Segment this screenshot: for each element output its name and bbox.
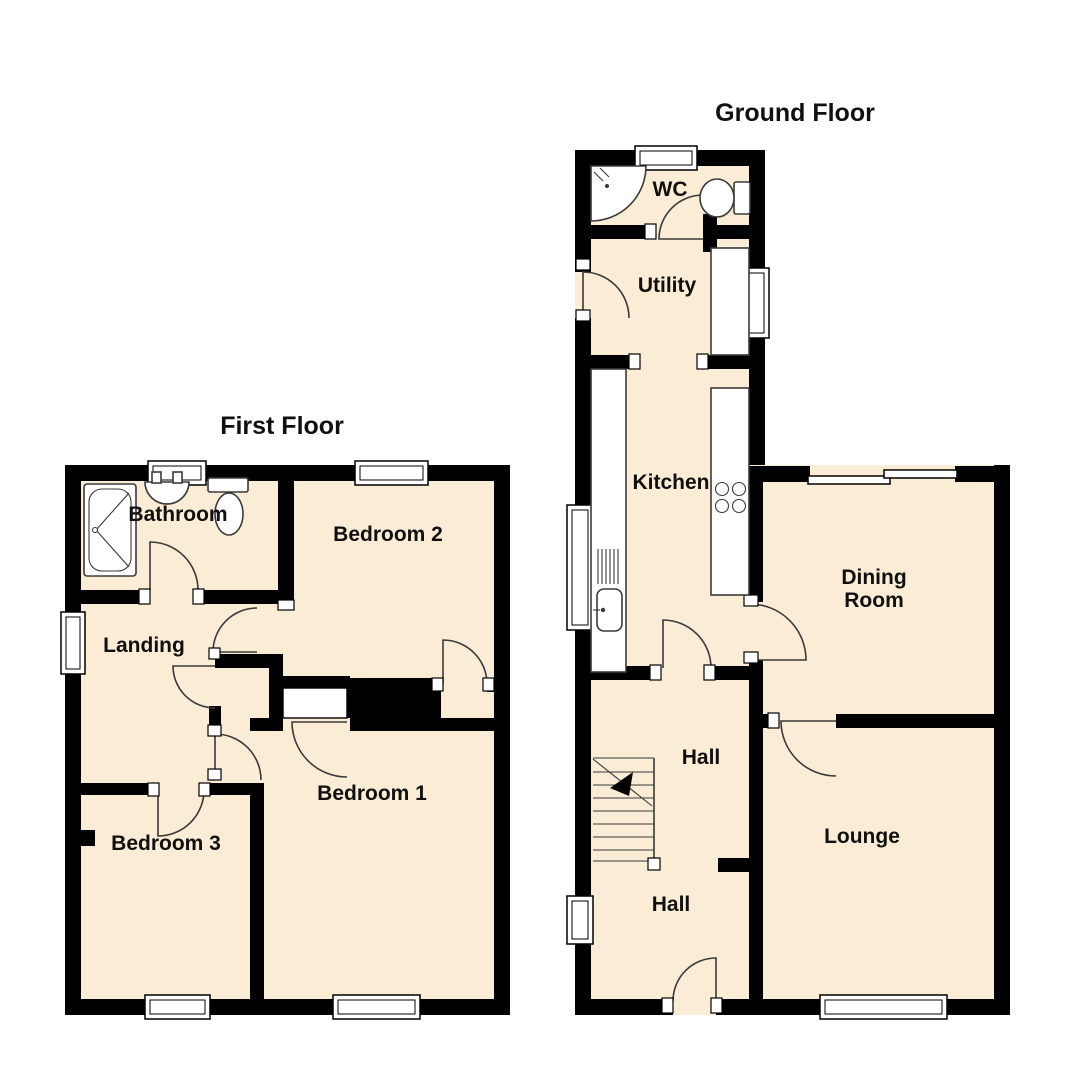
door-jamb <box>139 589 150 604</box>
wall <box>703 214 717 252</box>
door-jamb <box>662 998 673 1013</box>
bathtub <box>84 484 136 576</box>
wall <box>269 654 283 720</box>
room-label-lounge: Lounge <box>824 825 900 848</box>
wall <box>250 783 264 999</box>
wall <box>749 466 810 482</box>
ground-floor-title: Ground Floor <box>715 99 875 127</box>
room-label-dining-line2: Room <box>844 589 904 612</box>
window <box>567 505 593 630</box>
wall <box>81 830 95 846</box>
cupboard <box>283 688 347 718</box>
door-jamb <box>576 310 590 321</box>
wall <box>591 225 647 239</box>
ground-floor-plan: Ground Floor <box>567 99 1010 1019</box>
floorplan-page: First Floor <box>0 0 1080 1080</box>
room-label-bedroom3: Bedroom 3 <box>111 832 221 855</box>
window <box>567 896 593 944</box>
wall <box>703 355 749 369</box>
room-label-kitchen: Kitchen <box>632 471 709 494</box>
wall <box>749 660 763 999</box>
door-jamb <box>711 998 722 1013</box>
door-jamb <box>209 648 220 659</box>
wall <box>65 465 510 481</box>
wall <box>278 481 294 604</box>
first-floor-title: First Floor <box>220 412 344 440</box>
wall <box>81 590 148 604</box>
door-jamb <box>768 713 779 728</box>
wall <box>494 465 510 1015</box>
wall <box>836 714 994 728</box>
room-label-bathroom: Bathroom <box>128 503 227 526</box>
wall <box>81 783 157 795</box>
floorplan-drawing: First Floor <box>0 0 1080 1080</box>
wall <box>65 465 81 1015</box>
window <box>333 995 420 1019</box>
wall <box>994 465 1010 1015</box>
door-jamb <box>650 665 661 680</box>
wall <box>250 718 283 731</box>
door-jamb <box>208 725 221 736</box>
wall <box>712 666 749 680</box>
room-label-hall-upper: Hall <box>682 746 721 769</box>
first-floor-plan: First Floor <box>61 412 510 1019</box>
door-jamb <box>645 224 656 239</box>
door-jamb <box>483 678 494 691</box>
room-label-bedroom2: Bedroom 2 <box>333 523 443 546</box>
wall <box>350 718 510 731</box>
window <box>145 995 210 1019</box>
window <box>61 612 85 674</box>
door-jamb <box>697 354 708 369</box>
chimney-breast <box>347 678 441 718</box>
room-label-utility: Utility <box>638 274 697 297</box>
door-jamb <box>704 665 715 680</box>
wall <box>575 150 591 272</box>
room-label-dining-line1: Dining <box>841 566 906 589</box>
door-jamb <box>278 600 294 610</box>
room-label-bedroom1: Bedroom 1 <box>317 782 427 805</box>
room-label-hall-lower: Hall <box>652 893 691 916</box>
toilet <box>700 179 750 217</box>
door-jamb <box>744 652 758 663</box>
door-jamb <box>576 259 590 270</box>
door-jamb <box>208 769 221 780</box>
room-label-landing: Landing <box>103 634 185 657</box>
newel-post <box>648 858 660 870</box>
door-jamb <box>193 589 204 604</box>
door-jamb <box>199 783 210 796</box>
window <box>820 995 947 1019</box>
door-jamb <box>148 783 159 796</box>
wall <box>65 999 510 1015</box>
wall <box>575 999 673 1015</box>
door-jamb <box>432 678 443 691</box>
window <box>355 461 428 485</box>
door-jamb <box>629 354 640 369</box>
wall <box>717 225 749 239</box>
wall <box>718 858 749 872</box>
door-jamb <box>744 595 758 606</box>
wall <box>749 481 763 602</box>
room-label-wc: WC <box>653 178 688 201</box>
